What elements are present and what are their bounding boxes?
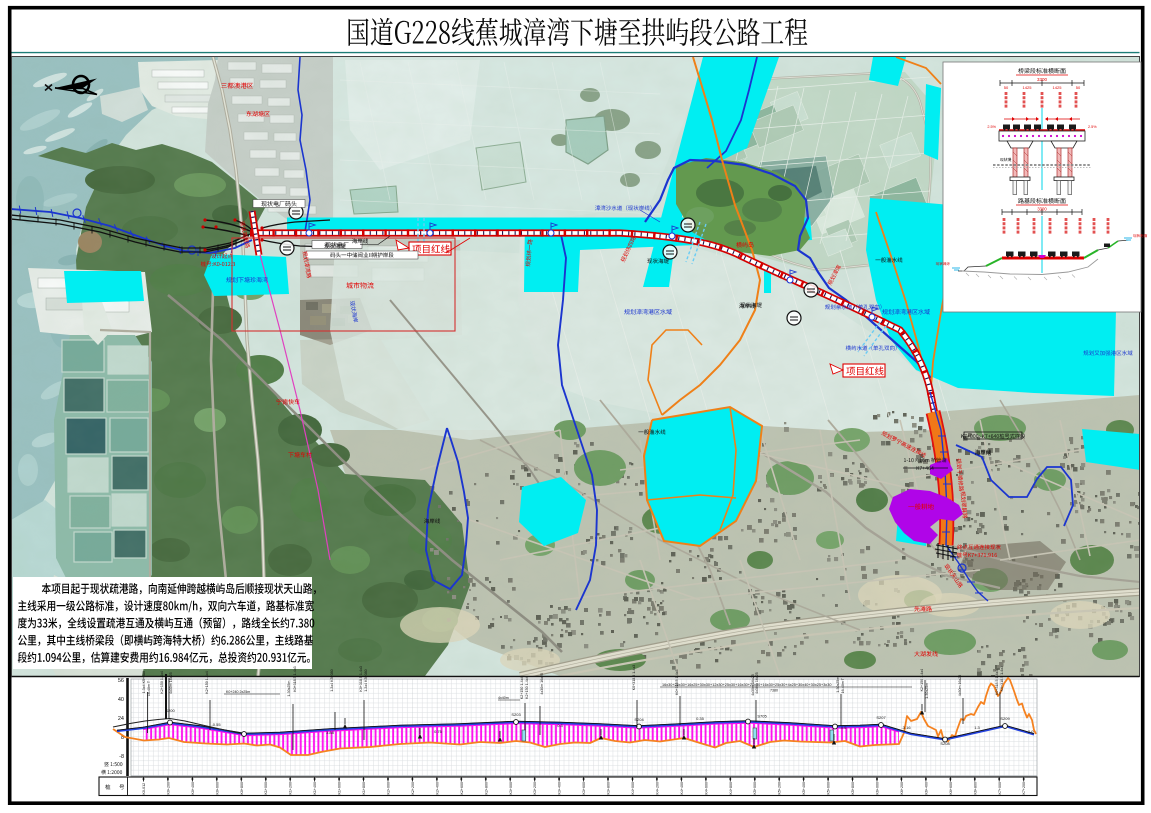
- svg-text:K3+200: K3+200: [533, 782, 537, 795]
- svg-text:0.3: 0.3: [557, 723, 563, 728]
- svg-text:K3+800: K3+800: [607, 782, 611, 795]
- svg-text:1-3x4 K5+080: 1-3x4 K5+080: [330, 669, 334, 691]
- svg-text:40: 40: [118, 697, 124, 703]
- svg-text:-3.16: -3.16: [901, 725, 911, 730]
- svg-text:K6+400: K6+400: [924, 782, 928, 795]
- svg-text:K3+600: K3+600: [582, 782, 586, 795]
- svg-text:S203: S203: [511, 712, 521, 717]
- svg-text:4x30m 16x25: 4x30m 16x25: [958, 675, 962, 697]
- svg-text:1-3x4 K5+080: 1-3x4 K5+080: [364, 669, 368, 691]
- svg-text:K2+150 1-4x4: K2+150 1-4x4: [520, 677, 524, 699]
- svg-text:K0+318.5 1-4x3: K0+318.5 1-4x3: [1000, 666, 1004, 691]
- svg-text:56: 56: [118, 678, 124, 684]
- svg-text:1-30x25m: 1-30x25m: [287, 681, 291, 697]
- svg-text:K2+150 1-4x4: K2+150 1-4x4: [920, 669, 924, 691]
- svg-text:16-40m T: 16-40m T: [841, 677, 845, 693]
- svg-text:K6+200: K6+200: [900, 782, 904, 795]
- svg-text:1-3x4 K5+080: 1-3x4 K5+080: [142, 671, 146, 693]
- svg-text:K4+000: K4+000: [631, 782, 635, 795]
- svg-text:24: 24: [118, 716, 124, 722]
- svg-text:K4+400: K4+400: [680, 782, 684, 795]
- svg-text:K4+200: K4+200: [655, 782, 659, 795]
- svg-text:K5+800: K5+800: [851, 782, 855, 795]
- svg-text:K6+600: K6+600: [949, 782, 953, 795]
- svg-text:K1+400: K1+400: [313, 782, 317, 795]
- svg-text:2.5%: 2.5%: [987, 125, 996, 129]
- svg-text:K5+000: K5+000: [753, 782, 757, 795]
- svg-text:K0+318.5 1-4x3: K0+318.5 1-4x3: [995, 670, 999, 695]
- svg-text:K7+000: K7+000: [998, 782, 1002, 795]
- svg-text:S200: S200: [165, 708, 175, 713]
- svg-text:K1+800: K1+800: [362, 782, 366, 795]
- svg-text:K7+200: K7+200: [1022, 782, 1026, 795]
- svg-text:4x30m 16x25: 4x30m 16x25: [540, 673, 544, 695]
- svg-text:-0.55: -0.55: [211, 722, 221, 727]
- svg-text:K2+200: K2+200: [411, 782, 415, 795]
- svg-text:S204: S204: [634, 717, 644, 722]
- svg-text:K0+318.5 1-4x3: K0+318.5 1-4x3: [293, 666, 297, 691]
- svg-text:K2+000: K2+000: [387, 782, 391, 795]
- svg-text:S207: S207: [876, 715, 886, 720]
- svg-text:1-30x25m: 1-30x25m: [925, 683, 929, 699]
- svg-text:1425: 1425: [1023, 85, 1033, 90]
- svg-text:-2.0: -2.0: [1027, 729, 1035, 734]
- svg-text:-8: -8: [119, 754, 124, 760]
- svg-text:S705: S705: [757, 714, 767, 719]
- svg-text:K1+000: K1+000: [264, 782, 268, 795]
- svg-text:K0+240 2x25m: K0+240 2x25m: [226, 690, 250, 694]
- svg-text:K0+400: K0+400: [191, 782, 195, 795]
- svg-text:K2+800: K2+800: [484, 782, 488, 795]
- svg-text:K4+600: K4+600: [704, 782, 708, 795]
- svg-text:K5+600: K5+600: [827, 782, 831, 795]
- svg-text:K5+200: K5+200: [778, 782, 782, 795]
- svg-text:0.35: 0.35: [696, 716, 705, 721]
- svg-text:K3+000: K3+000: [509, 782, 513, 795]
- svg-text:1-30x25m: 1-30x25m: [836, 677, 840, 693]
- svg-text:3300: 3300: [1037, 207, 1047, 212]
- svg-text:K2+600: K2+600: [460, 782, 464, 795]
- svg-text:1425: 1425: [1053, 85, 1063, 90]
- svg-text:K2+150 1-4x4: K2+150 1-4x4: [205, 671, 209, 693]
- svg-text:3.88: 3.88: [326, 730, 335, 735]
- svg-text:K0+318.5 1-4x3: K0+318.5 1-4x3: [359, 666, 363, 691]
- svg-text:K5+400: K5+400: [802, 782, 806, 795]
- svg-text:16-40m T: 16-40m T: [147, 680, 151, 696]
- svg-text:3300: 3300: [1037, 77, 1048, 82]
- svg-text:K6+800: K6+800: [973, 782, 977, 795]
- svg-text:50: 50: [1076, 85, 1081, 90]
- svg-text:S209: S209: [1000, 716, 1010, 721]
- svg-text:2.5%: 2.5%: [1088, 125, 1097, 129]
- svg-text:1.3: 1.3: [974, 725, 980, 730]
- svg-text:K3+400: K3+400: [558, 782, 562, 795]
- svg-text:K6+000: K6+000: [876, 782, 880, 795]
- svg-text:K0+200: K0+200: [166, 782, 170, 795]
- svg-text:K1+600: K1+600: [338, 782, 342, 795]
- svg-text:4x30m 16x25: 4x30m 16x25: [169, 672, 173, 694]
- svg-text:4x40m: 4x40m: [498, 696, 509, 700]
- svg-text:K1+200: K1+200: [289, 782, 293, 795]
- svg-text:50: 50: [1004, 85, 1009, 90]
- svg-text:K2+400: K2+400: [435, 782, 439, 795]
- svg-text:16x30+25x30+16x25+30x30+12x30+: 16x30+25x30+16x25+30x30+12x30+25x30+16x3…: [662, 683, 831, 687]
- svg-text:0.75: 0.75: [434, 729, 443, 734]
- svg-text:K0+600: K0+600: [215, 782, 219, 795]
- svg-text:K4+800: K4+800: [729, 782, 733, 795]
- svg-text:K0+800: K0+800: [240, 782, 244, 795]
- svg-text:K2+150 1-4x4: K2+150 1-4x4: [160, 671, 164, 693]
- svg-text:S208: S208: [940, 741, 950, 746]
- svg-text:-0.5: -0.5: [840, 725, 848, 730]
- svg-text:K2+150 1-4x4: K2+150 1-4x4: [525, 676, 529, 698]
- svg-text:K0+318.5 1-4x3: K0+318.5 1-4x3: [632, 665, 636, 690]
- svg-text:K0-012: K0-012: [142, 783, 146, 795]
- svg-text:7380: 7380: [770, 689, 778, 693]
